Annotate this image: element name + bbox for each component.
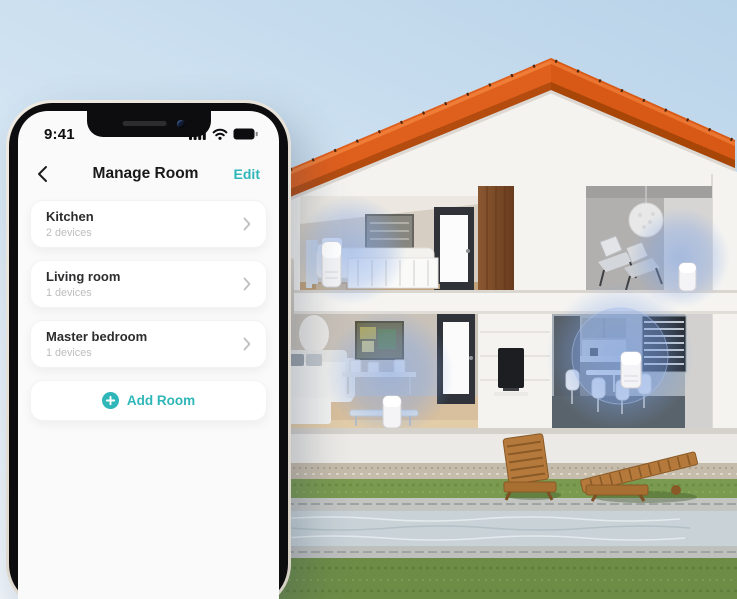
battery-icon	[233, 128, 258, 140]
room-name: Living room	[46, 269, 120, 284]
phone-mockup: 9:41	[6, 100, 291, 599]
speaker-slit	[122, 121, 166, 126]
edit-button[interactable]: Edit	[228, 166, 260, 182]
scene: 9:41	[0, 0, 737, 599]
phone-notch	[87, 111, 211, 137]
wifi-icon	[212, 128, 228, 140]
add-room-label: Add Room	[127, 393, 195, 408]
smart-speaker-study	[679, 263, 696, 291]
chevron-left-icon	[37, 165, 48, 183]
room-name: Kitchen	[46, 209, 94, 224]
room-card-text: Kitchen 2 devices	[46, 209, 94, 239]
wood-panel-wall	[478, 186, 514, 290]
phone-screen: 9:41	[18, 111, 279, 599]
smart-speaker-kitchen	[621, 352, 641, 388]
chevron-right-icon	[243, 217, 251, 231]
pool	[270, 498, 737, 558]
chevron-right-icon	[243, 337, 251, 351]
smart-speaker-living-room	[383, 396, 401, 428]
room-card-text: Living room 1 devices	[46, 269, 120, 299]
page-title: Manage Room	[63, 165, 228, 183]
room-card-living-room[interactable]: Living room 1 devices	[30, 260, 267, 308]
add-room-button[interactable]: Add Room	[30, 380, 267, 421]
camera-dot	[177, 120, 185, 128]
room-device-count: 1 devices	[46, 347, 147, 359]
room-name: Master bedroom	[46, 329, 147, 344]
room-card-text: Master bedroom 1 devices	[46, 329, 147, 359]
smart-speaker-bedroom	[322, 242, 341, 287]
room-list: Kitchen 2 devices Living room 1 devices	[30, 200, 267, 421]
plus-circle-icon	[102, 392, 119, 409]
app-header: Manage Room Edit	[18, 161, 279, 187]
foundation-wall	[266, 428, 737, 463]
room-card-kitchen[interactable]: Kitchen 2 devices	[30, 200, 267, 248]
room-device-count: 1 devices	[46, 287, 120, 299]
bedroom-door	[434, 207, 474, 290]
device-glow-kitchen	[546, 282, 694, 430]
back-button[interactable]	[37, 165, 63, 183]
chevron-right-icon	[243, 277, 251, 291]
lower-lawn	[270, 558, 737, 599]
room-device-count: 2 devices	[46, 227, 94, 239]
room-card-master-bedroom[interactable]: Master bedroom 1 devices	[30, 320, 267, 368]
status-time: 9:41	[44, 126, 75, 143]
device-glow-bedroom	[297, 195, 407, 305]
